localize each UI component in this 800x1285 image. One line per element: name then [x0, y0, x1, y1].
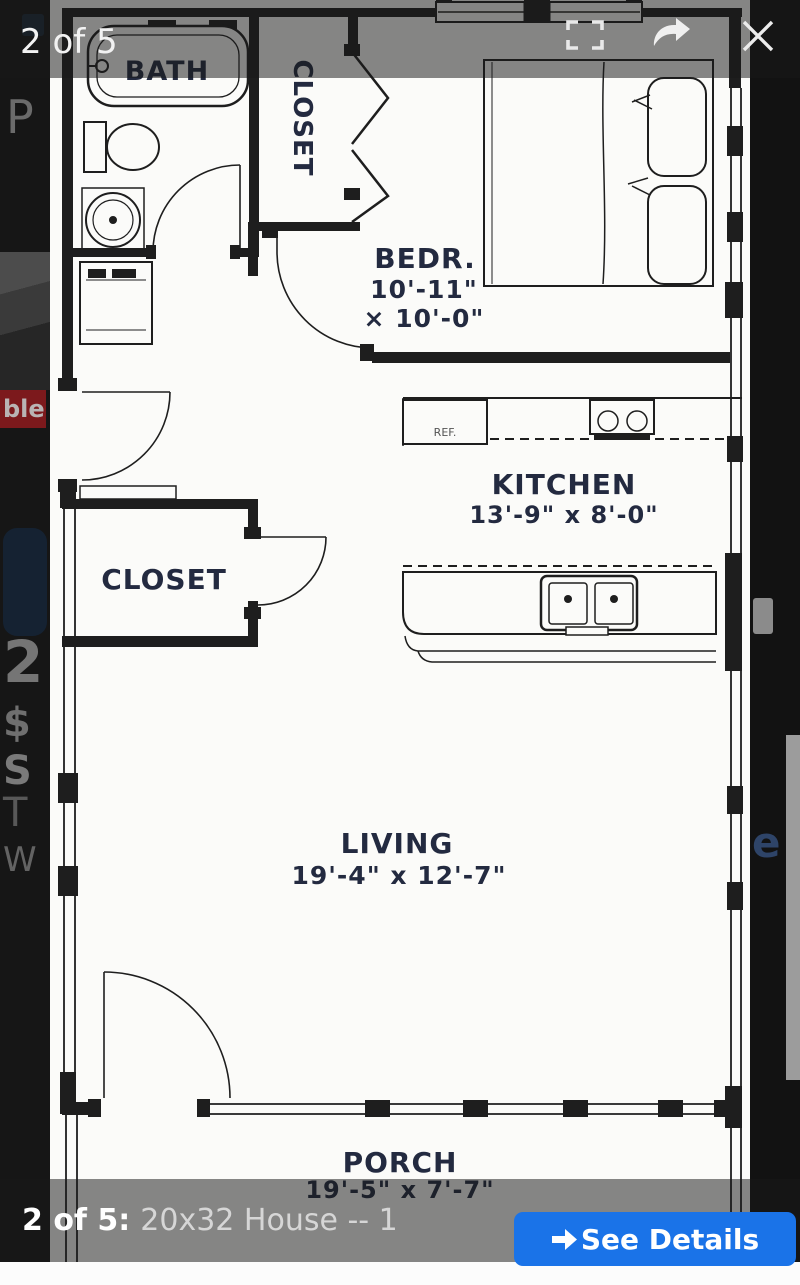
living-label: LIVING: [341, 827, 454, 860]
caption-title: 20x32 House -- 1: [140, 1203, 397, 1238]
fullscreen-icon: [566, 20, 604, 50]
closet-mid-label: CLOSET: [101, 563, 227, 596]
background-text-fragment: W: [3, 840, 37, 880]
background-text-fragment: $: [3, 700, 31, 746]
background-card-corner: [753, 598, 773, 634]
kitchen-label: KITCHEN: [492, 468, 637, 501]
background-text-fragment: P: [6, 90, 34, 144]
background-card-edge: [786, 735, 800, 1080]
background-text-fragment: e: [752, 818, 781, 867]
background-text-fragment: S: [3, 748, 32, 794]
see-details-label: See Details: [581, 1223, 759, 1256]
background-text-fragment: 2: [3, 628, 43, 696]
bedroom-label: BEDR.: [374, 242, 475, 275]
bedroom-dim2: × 10'-0": [364, 304, 485, 333]
background-text-fragment: T: [3, 790, 27, 836]
background-card-corner: [3, 528, 47, 636]
background-page-left-edge: P ble 2 $ S T W: [0, 0, 50, 1285]
floor-plan-image[interactable]: BATH CLOSET BEDR. 10'-11" × 10'-0" KITCH…: [50, 0, 750, 1285]
background-page-right-edge: e: [750, 0, 800, 1285]
background-badge: ble: [0, 390, 46, 428]
share-button[interactable]: [648, 14, 692, 50]
kitchen-dims: 13'-9" x 8'-0": [469, 501, 658, 529]
share-icon: [648, 14, 692, 50]
fullscreen-button[interactable]: [566, 20, 604, 50]
close-button[interactable]: [740, 18, 776, 54]
image-counter: 2 of 5: [20, 22, 118, 62]
living-dims: 19'-4" x 12'-7": [291, 861, 506, 890]
porch-label: PORCH: [343, 1146, 458, 1179]
arrow-right-icon: [551, 1228, 578, 1251]
caption-counter: 2 of 5:: [22, 1203, 130, 1238]
viewer-top-bar: 2 of 5: [0, 0, 800, 78]
close-icon: [740, 18, 776, 54]
fridge-label: REF.: [434, 426, 457, 439]
see-details-button[interactable]: See Details: [514, 1212, 796, 1266]
image-caption: 2 of 5:20x32 House -- 1: [22, 1203, 398, 1238]
floor-plan-svg: BATH CLOSET BEDR. 10'-11" × 10'-0" KITCH…: [50, 0, 750, 1285]
bedroom-dim1: 10'-11": [370, 275, 478, 304]
image-viewer-screen: P ble 2 $ S T W e: [0, 0, 800, 1285]
background-thumbnail: [0, 252, 50, 390]
